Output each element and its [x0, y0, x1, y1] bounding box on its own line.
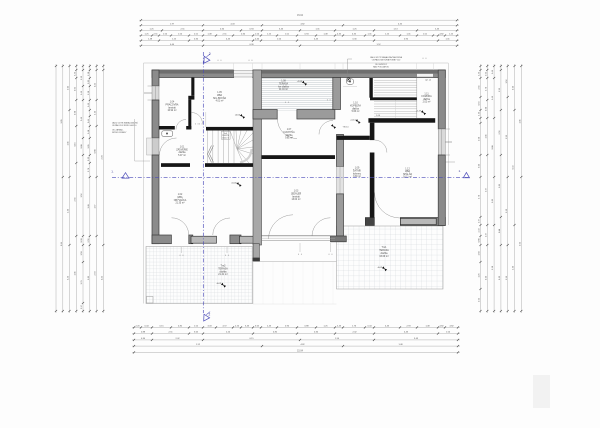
svg-text:1.01: 1.01: [180, 147, 185, 149]
svg-text:-0.02: -0.02: [377, 267, 383, 269]
svg-text:SPÁLŇA: SPÁLŇA: [403, 173, 413, 176]
svg-text:15.04: 15.04: [297, 350, 303, 352]
svg-text:dlažba: dlažba: [286, 135, 293, 137]
svg-text:+2.83: +2.83: [297, 81, 303, 83]
svg-text:-0.02: -0.02: [216, 283, 222, 285]
svg-text:IZBA: IZBA: [405, 170, 411, 173]
svg-text:1.10: 1.10: [353, 103, 358, 105]
svg-text:1.09: 1.09: [355, 168, 360, 170]
svg-text:21.41 m²: 21.41 m²: [218, 273, 228, 276]
svg-text:1.12: 1.12: [405, 168, 410, 170]
svg-text:5.66 m²: 5.66 m²: [352, 110, 360, 113]
svg-text:SKL.BOXŇA: SKL.BOXŇA: [213, 97, 226, 100]
svg-text:IZBA: IZBA: [217, 94, 223, 97]
svg-text:KUCHYŇA: KUCHYŇA: [283, 131, 295, 134]
svg-text:+1.47: +1.47: [416, 111, 422, 113]
svg-text:1.08: 1.08: [281, 81, 286, 83]
svg-text:1.: 1.: [458, 169, 461, 173]
svg-text:OBÝVAČKA: OBÝVAČKA: [174, 199, 187, 202]
svg-text:dlažba: dlažba: [179, 152, 186, 154]
svg-text:2: 2: [209, 312, 211, 316]
svg-text:dlažba: dlažba: [423, 99, 430, 101]
svg-text:1.11: 1.11: [424, 93, 429, 95]
svg-text:YK/2.0: YK/2.0: [343, 127, 350, 129]
svg-text:ŠATNÍK: ŠATNÍK: [353, 170, 362, 173]
svg-text:NAD PODLAHOU: NAD PODLAHOU: [373, 66, 390, 69]
svg-text:21.35 m²: 21.35 m²: [175, 202, 184, 205]
svg-text:KOMORA: KOMORA: [421, 95, 432, 98]
svg-text:ODPADOVÁ RÚRA HOBBY 110: ODPADOVÁ RÚRA HOBBY 110: [372, 59, 401, 62]
svg-text:NIČÍM ODPADY: NIČÍM ODPADY: [112, 131, 127, 134]
svg-text:1.03: 1.03: [294, 191, 299, 193]
svg-text:KÚPEĽŇA: KÚPEĽŇA: [350, 105, 361, 108]
svg-text:9.81 m²: 9.81 m²: [285, 137, 293, 140]
svg-text:1.05: 1.05: [217, 92, 222, 94]
svg-text:1.02: 1.02: [178, 194, 183, 196]
svg-text:13.04 m²: 13.04 m²: [291, 198, 300, 201]
svg-text:1.07: 1.07: [287, 129, 292, 131]
svg-text:1.04: 1.04: [170, 102, 175, 104]
svg-text:výť. ok: výť. ok: [425, 78, 431, 81]
svg-text:JEDÁLEŇ: JEDÁLEŇ: [291, 193, 302, 196]
svg-text:1.: 1.: [111, 170, 114, 174]
svg-text:TERASA: TERASA: [279, 83, 289, 86]
svg-text:PRACOVŇA: PRACOVŇA: [166, 104, 179, 107]
svg-text:15.04: 15.04: [297, 15, 303, 17]
svg-text:10.92 m²: 10.92 m²: [167, 109, 176, 112]
svg-text:5.07 m²: 5.07 m²: [178, 154, 186, 157]
svg-text:koberec: koberec: [353, 172, 362, 175]
svg-text:2.02 m²: 2.02 m²: [423, 101, 431, 104]
svg-text:IZBA: IZBA: [177, 196, 183, 199]
svg-text:ODPADOVÚ RÚRU HG110: ODPADOVÚ RÚRU HG110: [112, 124, 137, 127]
svg-text:laminát: laminát: [292, 195, 300, 198]
svg-text:33.09 m²: 33.09 m²: [379, 255, 389, 258]
svg-text:+0.17: +0.17: [350, 120, 356, 122]
svg-text:18x17.5: 18x17.5: [222, 138, 229, 140]
svg-text:11.41 m²: 11.41 m²: [279, 88, 288, 91]
svg-text:laminát: laminát: [168, 106, 176, 109]
svg-text:±0.00: ±0.00: [231, 183, 237, 185]
svg-text:dlažba: dlažba: [352, 108, 359, 110]
svg-text:ker.dlažba: ker.dlažba: [278, 85, 289, 88]
svg-text:4.01 m²: 4.01 m²: [216, 100, 224, 103]
svg-text:±0.00: ±0.00: [235, 114, 241, 116]
svg-text:ZÁDVERIE: ZÁDVERIE: [176, 148, 188, 151]
svg-text:2: 2: [209, 52, 211, 56]
